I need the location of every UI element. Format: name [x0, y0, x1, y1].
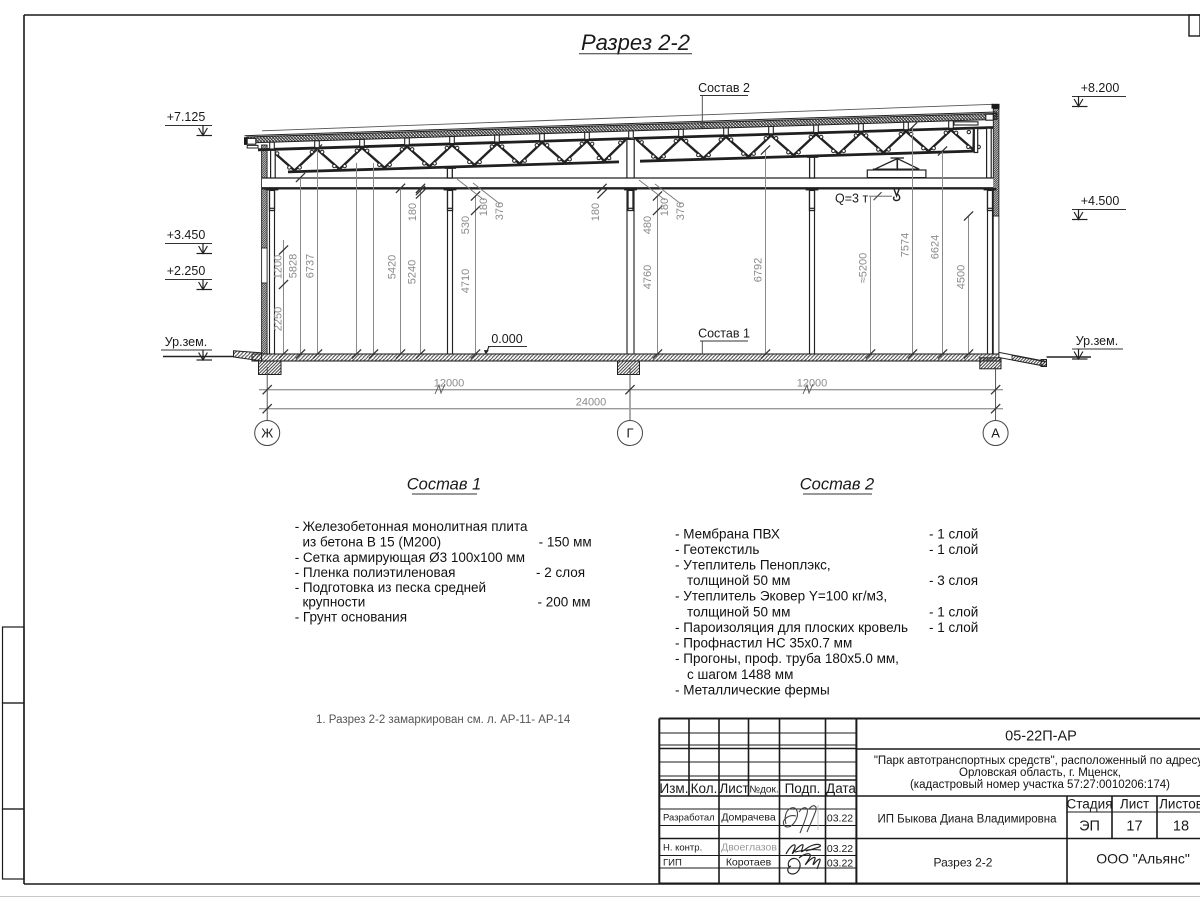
svg-text:480: 480: [642, 216, 654, 234]
svg-text:Ур.зем.: Ур.зем.: [165, 335, 207, 349]
svg-text:Листов: Листов: [1159, 797, 1200, 812]
svg-text:- Утеплитель Пеноплэкс,: - Утеплитель Пеноплэкс,: [675, 558, 831, 573]
svg-text:1. Разрез 2-2 замаркирован см.: 1. Разрез 2-2 замаркирован см. л. АР-11-…: [316, 714, 571, 726]
svg-text:- 1 слой: - 1 слой: [929, 605, 978, 620]
svg-text:6624: 6624: [930, 235, 942, 259]
svg-text:- 2 слоя: - 2 слоя: [536, 565, 585, 580]
svg-text:- Мембрана ПВХ: - Мембрана ПВХ: [675, 527, 780, 542]
svg-text:180: 180: [407, 203, 419, 221]
svg-text:+4.500: +4.500: [1081, 194, 1120, 208]
svg-text:Ур.зем.: Ур.зем.: [1076, 334, 1118, 348]
svg-text:05-22П-АР: 05-22П-АР: [1005, 729, 1077, 745]
svg-text:толщиной 50 мм: толщиной 50 мм: [687, 573, 790, 588]
svg-text:Изм.: Изм.: [660, 781, 689, 796]
svg-text:6792: 6792: [753, 258, 765, 282]
svg-text:4710: 4710: [460, 269, 472, 293]
svg-text:А: А: [991, 426, 1000, 441]
svg-text:Двоеглазов: Двоеглазов: [721, 842, 777, 854]
svg-text:18: 18: [1173, 819, 1189, 835]
svg-text:4500: 4500: [956, 265, 968, 289]
svg-text:Подп.: Подп.: [785, 781, 821, 796]
svg-text:12000: 12000: [797, 377, 828, 389]
svg-text:- Пароизоляция для плоских кро: - Пароизоляция для плоских кровель: [675, 620, 908, 635]
svg-text:Состав 2: Состав 2: [698, 81, 750, 95]
svg-text:+3.450: +3.450: [167, 228, 206, 242]
svg-text:2250: 2250: [273, 307, 285, 331]
svg-text:6737: 6737: [305, 254, 317, 278]
svg-text:- Пленка полиэтиленовая: - Пленка полиэтиленовая: [295, 565, 456, 580]
svg-text:Разрез 2-2: Разрез 2-2: [934, 856, 993, 870]
svg-text:03.22: 03.22: [827, 843, 853, 855]
svg-text:крупности: крупности: [303, 595, 366, 610]
svg-text:Н. контр.: Н. контр.: [663, 843, 702, 854]
svg-text:5240: 5240: [407, 260, 419, 284]
svg-text:№док.: №док.: [749, 785, 778, 796]
svg-text:Коротаев: Коротаев: [726, 857, 772, 869]
svg-text:"Парк автотранспортных средств: "Парк автотранспортных средств", располо…: [874, 755, 1200, 767]
svg-text:1200: 1200: [273, 255, 285, 279]
svg-text:Q=3 т: Q=3 т: [835, 192, 868, 206]
svg-text:ЭП: ЭП: [1079, 819, 1100, 835]
svg-text:Состав 1: Состав 1: [698, 327, 750, 341]
svg-text:Разрез 2-2: Разрез 2-2: [581, 30, 690, 55]
svg-text:530: 530: [460, 216, 472, 234]
svg-text:Ж: Ж: [261, 426, 273, 441]
svg-text:376: 376: [494, 202, 506, 220]
svg-text:- 3 слоя: - 3 слоя: [929, 573, 978, 588]
svg-text:180: 180: [659, 198, 671, 216]
svg-text:5828: 5828: [288, 254, 300, 278]
svg-text:180: 180: [478, 198, 490, 216]
svg-text:с шагом 1488 мм: с шагом 1488 мм: [687, 667, 793, 682]
svg-text:- Геотекстиль: - Геотекстиль: [675, 542, 759, 557]
svg-text:Лист: Лист: [1120, 797, 1149, 812]
svg-text:Орловская область, г. Мценск,: Орловская область, г. Мценск,: [959, 767, 1121, 779]
svg-text:Домрачева: Домрачева: [721, 812, 776, 824]
svg-text:+7.125: +7.125: [167, 110, 206, 124]
svg-text:ГИП: ГИП: [663, 858, 682, 869]
svg-text:-: -: [295, 519, 300, 534]
svg-text:7574: 7574: [900, 233, 912, 257]
svg-text:- Сетка армирующая Ø3 100х100: - Сетка армирующая Ø3 100х100 мм: [295, 550, 525, 565]
svg-text:- 1 слой: - 1 слой: [929, 527, 978, 542]
svg-text:Лист: Лист: [719, 781, 748, 796]
svg-text:+2.250: +2.250: [167, 264, 206, 278]
svg-text:Состав 1: Состав 1: [407, 476, 481, 494]
svg-text:- 1 слой: - 1 слой: [929, 542, 978, 557]
svg-text:03.22: 03.22: [827, 858, 853, 870]
svg-text:Разработал: Разработал: [663, 813, 715, 824]
svg-text:- Грунт основания: - Грунт основания: [295, 609, 407, 624]
svg-text:4760: 4760: [642, 265, 654, 289]
svg-text:ИП Быкова Диана Владимировна: ИП Быкова Диана Владимировна: [877, 814, 1057, 826]
svg-text:ООО "Альянс": ООО "Альянс": [1096, 851, 1190, 867]
svg-text:- 200 мм: - 200 мм: [538, 595, 591, 610]
svg-text:(кадастровый номер участка 57:: (кадастровый номер участка 57:27:0010206…: [910, 779, 1170, 791]
svg-text:Кол.: Кол.: [691, 781, 718, 796]
svg-text:из бетона В 15 (М200): из бетона В 15 (М200): [303, 535, 442, 550]
svg-text:0.000: 0.000: [491, 332, 522, 346]
svg-text:5420: 5420: [387, 255, 399, 279]
svg-text:03.22: 03.22: [827, 813, 853, 825]
svg-text:- Металлические фермы: - Металлические фермы: [675, 683, 830, 698]
svg-text:Состав 2: Состав 2: [800, 476, 874, 494]
svg-text:- 1 слой: - 1 слой: [929, 620, 978, 635]
svg-text:17: 17: [1126, 819, 1142, 835]
svg-text:- Профнастил НС 35х0.7 мм: - Профнастил НС 35х0.7 мм: [675, 636, 852, 651]
svg-text:- 150 мм: - 150 мм: [539, 535, 592, 550]
svg-text:Г: Г: [626, 426, 633, 441]
svg-text:- Подготовка из песка средней: - Подготовка из песка средней: [295, 580, 486, 595]
svg-text:Стадия: Стадия: [1066, 797, 1112, 812]
svg-text:- Прогоны, проф. труба 180х5.0: - Прогоны, проф. труба 180х5.0 мм,: [675, 651, 899, 666]
svg-text:Дата: Дата: [826, 781, 856, 796]
svg-text:376: 376: [675, 202, 687, 220]
svg-text:≈5200: ≈5200: [858, 253, 870, 284]
svg-text:- Утеплитель Эковер Y=100 кг/м: - Утеплитель Эковер Y=100 кг/м3,: [675, 589, 887, 604]
svg-text:+8.200: +8.200: [1081, 81, 1120, 95]
svg-text:24000: 24000: [576, 396, 607, 408]
svg-text:180: 180: [590, 203, 602, 221]
svg-text:толщиной 50 мм: толщиной 50 мм: [687, 605, 790, 620]
svg-text:Железобетонная монолитная пли: Железобетонная монолитная плита: [303, 519, 528, 534]
